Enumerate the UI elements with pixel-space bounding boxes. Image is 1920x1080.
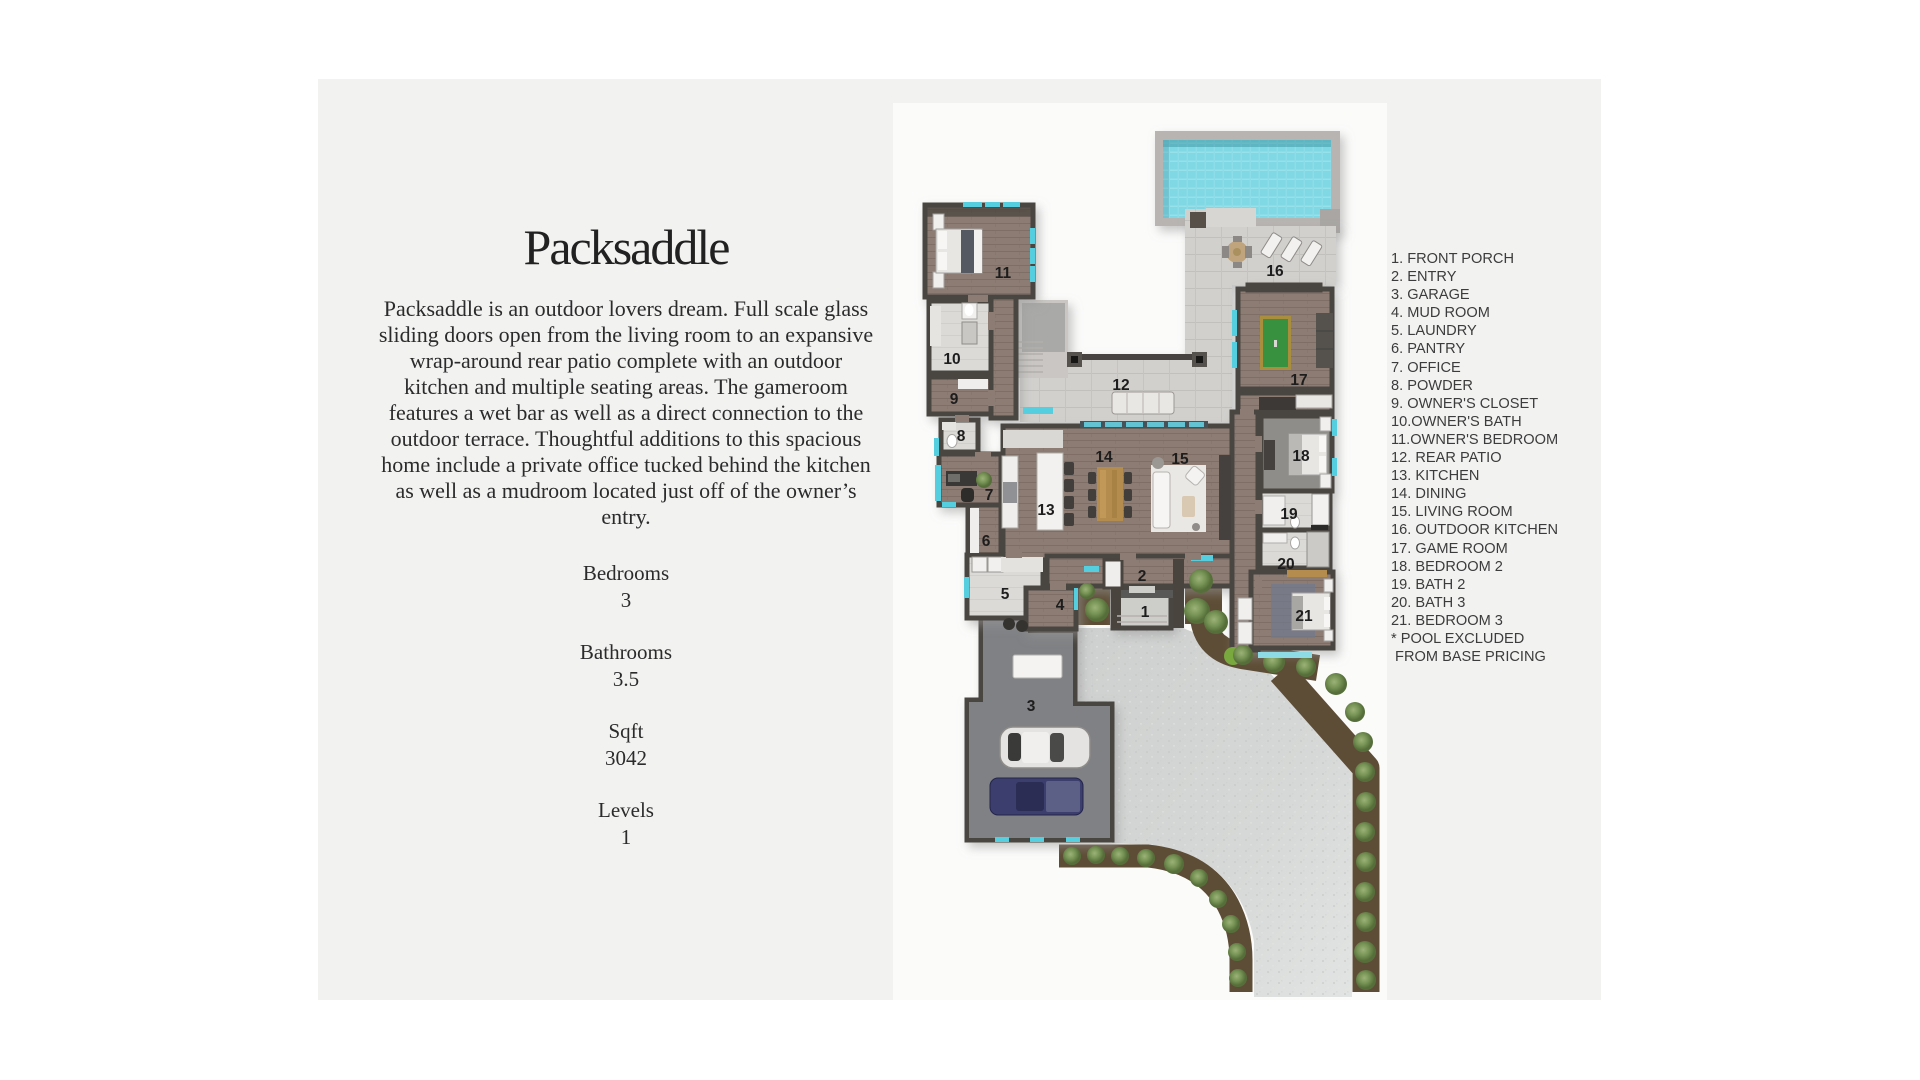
svg-text:21: 21 [1295,608,1313,625]
svg-text:19: 19 [1280,506,1298,523]
svg-text:3: 3 [1027,698,1036,715]
svg-text:7: 7 [985,487,994,504]
svg-text:12: 12 [1112,377,1129,394]
svg-text:1: 1 [1141,604,1150,621]
svg-text:11: 11 [995,265,1012,282]
svg-text:5: 5 [1001,586,1010,603]
svg-text:6: 6 [982,533,991,550]
svg-text:15: 15 [1171,451,1189,468]
svg-text:10: 10 [943,351,960,368]
svg-text:4: 4 [1056,597,1065,614]
svg-text:13: 13 [1037,502,1055,519]
svg-text:14: 14 [1095,449,1113,466]
svg-text:18: 18 [1292,448,1310,465]
svg-text:20: 20 [1277,556,1294,573]
svg-text:17: 17 [1290,372,1307,389]
svg-text:8: 8 [957,428,966,445]
svg-text:9: 9 [950,391,959,408]
svg-text:2: 2 [1138,568,1147,585]
svg-text:16: 16 [1266,263,1284,280]
